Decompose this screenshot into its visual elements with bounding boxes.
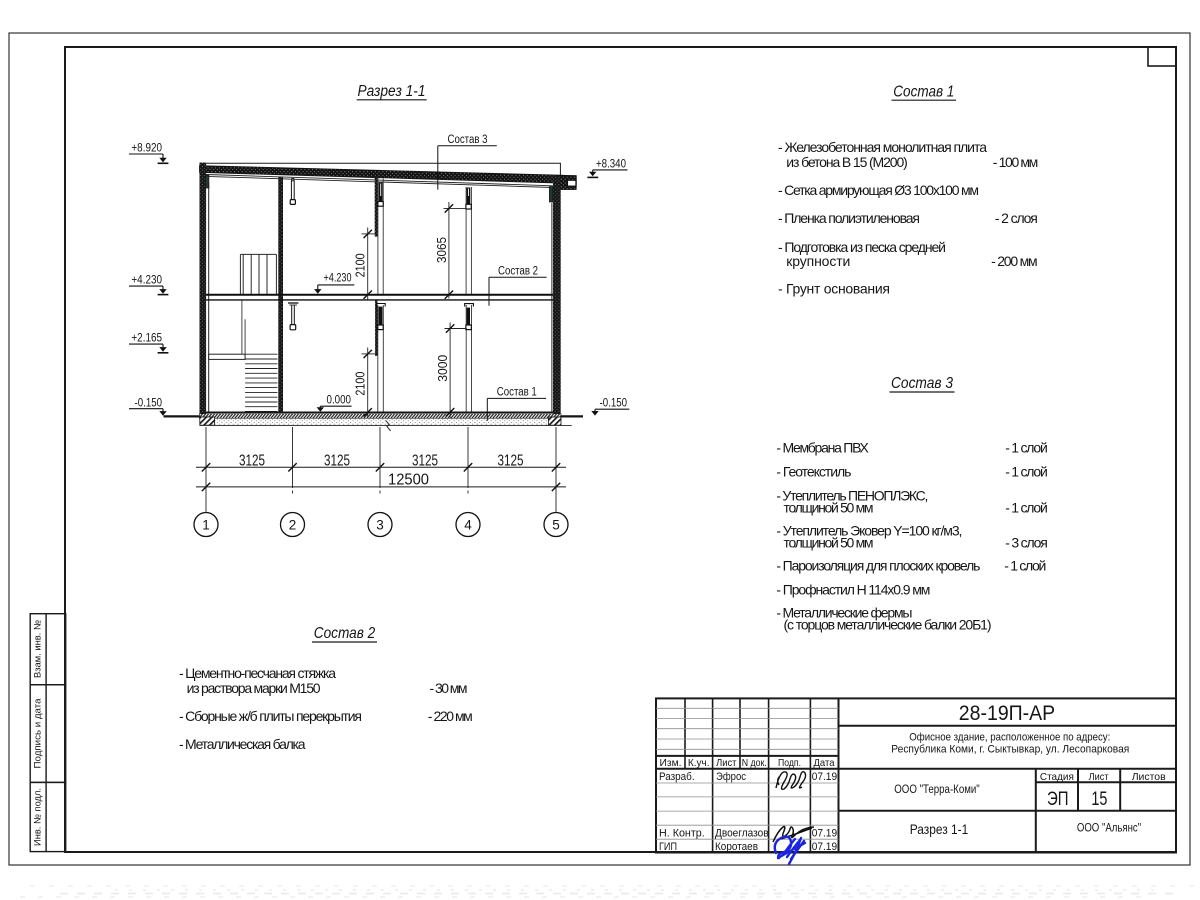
svg-text:- 200 мм: - 200 мм [991, 253, 1038, 269]
svg-text:- Геотекстиль: - Геотекстиль [776, 464, 851, 480]
svg-text:- Мембрана ПВХ: - Мембрана ПВХ [776, 440, 869, 456]
svg-text:Дата: Дата [814, 757, 835, 769]
svg-text:Состав 1: Состав 1 [497, 386, 537, 398]
svg-text:- 220 мм: - 220 мм [428, 708, 473, 724]
svg-text:07.19: 07.19 [812, 841, 837, 853]
svg-text:Офисное здание, расположенное: Офисное здание, расположенное по адресу: [909, 732, 1110, 744]
svg-text:Двоеглазов: Двоеглазов [715, 828, 769, 840]
svg-text:(с торцов металлические балки: (с торцов металлические балки 20Б1) [784, 617, 992, 633]
svg-text:+4.230: +4.230 [324, 273, 352, 285]
svg-text:28-19П-АР: 28-19П-АР [959, 701, 1055, 725]
svg-text:- 100 мм: - 100 мм [993, 154, 1039, 170]
svg-text:ООО "Терра-Коми": ООО "Терра-Коми" [894, 784, 980, 796]
svg-text:Подп.: Подп. [778, 757, 801, 769]
svg-text:07.19: 07.19 [812, 828, 837, 840]
svg-text:- Сетка армирующая Ø3 100х100: - Сетка армирующая Ø3 100х100 мм [778, 182, 979, 198]
svg-text:ЭП: ЭП [1047, 789, 1069, 810]
svg-text:крупности: крупности [786, 253, 850, 269]
svg-text:Лист: Лист [716, 757, 736, 769]
svg-text:К.уч.: К.уч. [688, 757, 710, 769]
svg-text:- Пароизоляция для плоских кро: - Пароизоляция для плоских кровель [776, 558, 980, 574]
svg-text:из раствора марки М150: из раствора марки М150 [187, 680, 321, 696]
svg-text:толщиной 50 мм: толщиной 50 мм [784, 500, 874, 516]
svg-text:3125: 3125 [239, 453, 265, 470]
svg-text:-0.150: -0.150 [135, 397, 163, 409]
svg-text:- 1 слой: - 1 слой [1005, 440, 1048, 456]
svg-text:Инв. № подл.: Инв. № подл. [33, 788, 44, 846]
svg-text:+8.340: +8.340 [596, 158, 626, 170]
svg-text:2: 2 [289, 517, 297, 532]
svg-text:- Профнастил Н 114х0.9 мм: - Профнастил Н 114х0.9 мм [776, 582, 930, 598]
svg-text:- 30 мм: - 30 мм [430, 680, 468, 696]
svg-text:Коротаев: Коротаев [715, 841, 758, 853]
svg-text:15: 15 [1091, 789, 1107, 810]
svg-text:2100: 2100 [354, 372, 368, 396]
svg-text:- 3 слоя: - 3 слоя [1005, 535, 1048, 551]
svg-text:Н. Контр.: Н. Контр. [659, 828, 705, 840]
svg-text:3: 3 [376, 517, 384, 532]
svg-text:3065: 3065 [435, 237, 449, 263]
svg-text:Стадия: Стадия [1040, 771, 1074, 783]
svg-text:из бетона В 15 (М200): из бетона В 15 (М200) [786, 154, 908, 170]
svg-text:- Цементно-песчаная стяжка: - Цементно-песчаная стяжка [179, 665, 336, 681]
svg-text:ГИП: ГИП [659, 841, 677, 853]
svg-text:Листов: Листов [1132, 771, 1166, 783]
svg-text:- 1 слой: - 1 слой [1005, 464, 1048, 480]
svg-text:Взам. инв. №: Взам. инв. № [33, 620, 44, 678]
svg-text:+8.920: +8.920 [131, 143, 162, 155]
svg-text:ООО "Альянс": ООО "Альянс" [1077, 823, 1141, 835]
svg-text:Эфрос: Эфрос [716, 771, 746, 783]
svg-text:- 1 слой: - 1 слой [1005, 500, 1048, 516]
svg-text:2100: 2100 [354, 253, 368, 277]
svg-text:07.19: 07.19 [812, 771, 837, 783]
svg-text:Состав 2: Состав 2 [498, 265, 538, 277]
svg-text:5: 5 [552, 517, 560, 532]
svg-text:толщиной 50 мм: толщиной 50 мм [784, 535, 874, 551]
svg-text:Состав 3: Состав 3 [891, 375, 953, 392]
svg-text:Состав 3: Состав 3 [448, 134, 488, 146]
svg-text:+2.165: +2.165 [131, 333, 162, 345]
svg-text:- Пленка полиэтиленовая: - Пленка полиэтиленовая [778, 210, 920, 226]
svg-text:4: 4 [464, 517, 472, 532]
svg-text:Разраб.: Разраб. [659, 771, 695, 783]
svg-text:+4.230: +4.230 [131, 275, 162, 287]
svg-text:3125: 3125 [498, 453, 524, 470]
svg-text:0.000: 0.000 [327, 394, 352, 406]
svg-text:Разрез 1-1: Разрез 1-1 [358, 83, 426, 100]
svg-text:Изм.: Изм. [660, 757, 682, 769]
svg-text:3000: 3000 [436, 355, 450, 382]
svg-text:- Металлическая балка: - Металлическая балка [179, 736, 306, 752]
svg-text:- Грунт основания: - Грунт основания [778, 280, 890, 296]
svg-text:Состав 1: Состав 1 [893, 83, 954, 100]
svg-text:Подпись и дата: Подпись и дата [33, 698, 44, 769]
svg-text:3125: 3125 [324, 453, 350, 470]
svg-text:- Железобетонная монолитная п: - Железобетонная монолитная плита [778, 139, 987, 155]
svg-text:- 2 слоя: - 2 слоя [995, 210, 1038, 226]
svg-text:- Сборные ж/б плиты перекрытия: - Сборные ж/б плиты перекрытия [179, 708, 362, 724]
svg-text:Состав 2: Состав 2 [314, 625, 376, 642]
svg-text:Лист: Лист [1089, 771, 1109, 783]
svg-text:- 1 слой: - 1 слой [1004, 558, 1046, 574]
svg-text:-0.150: -0.150 [600, 397, 628, 409]
svg-text:1: 1 [202, 517, 210, 532]
svg-text:N док.: N док. [742, 757, 767, 769]
svg-text:12500: 12500 [388, 471, 429, 488]
svg-text:Разрез 1-1: Разрез 1-1 [910, 821, 969, 837]
svg-text:Республика Коми, г. Сыктывкар,: Республика Коми, г. Сыктывкар, ул. Лесоп… [891, 744, 1129, 756]
svg-text:3125: 3125 [412, 453, 438, 470]
